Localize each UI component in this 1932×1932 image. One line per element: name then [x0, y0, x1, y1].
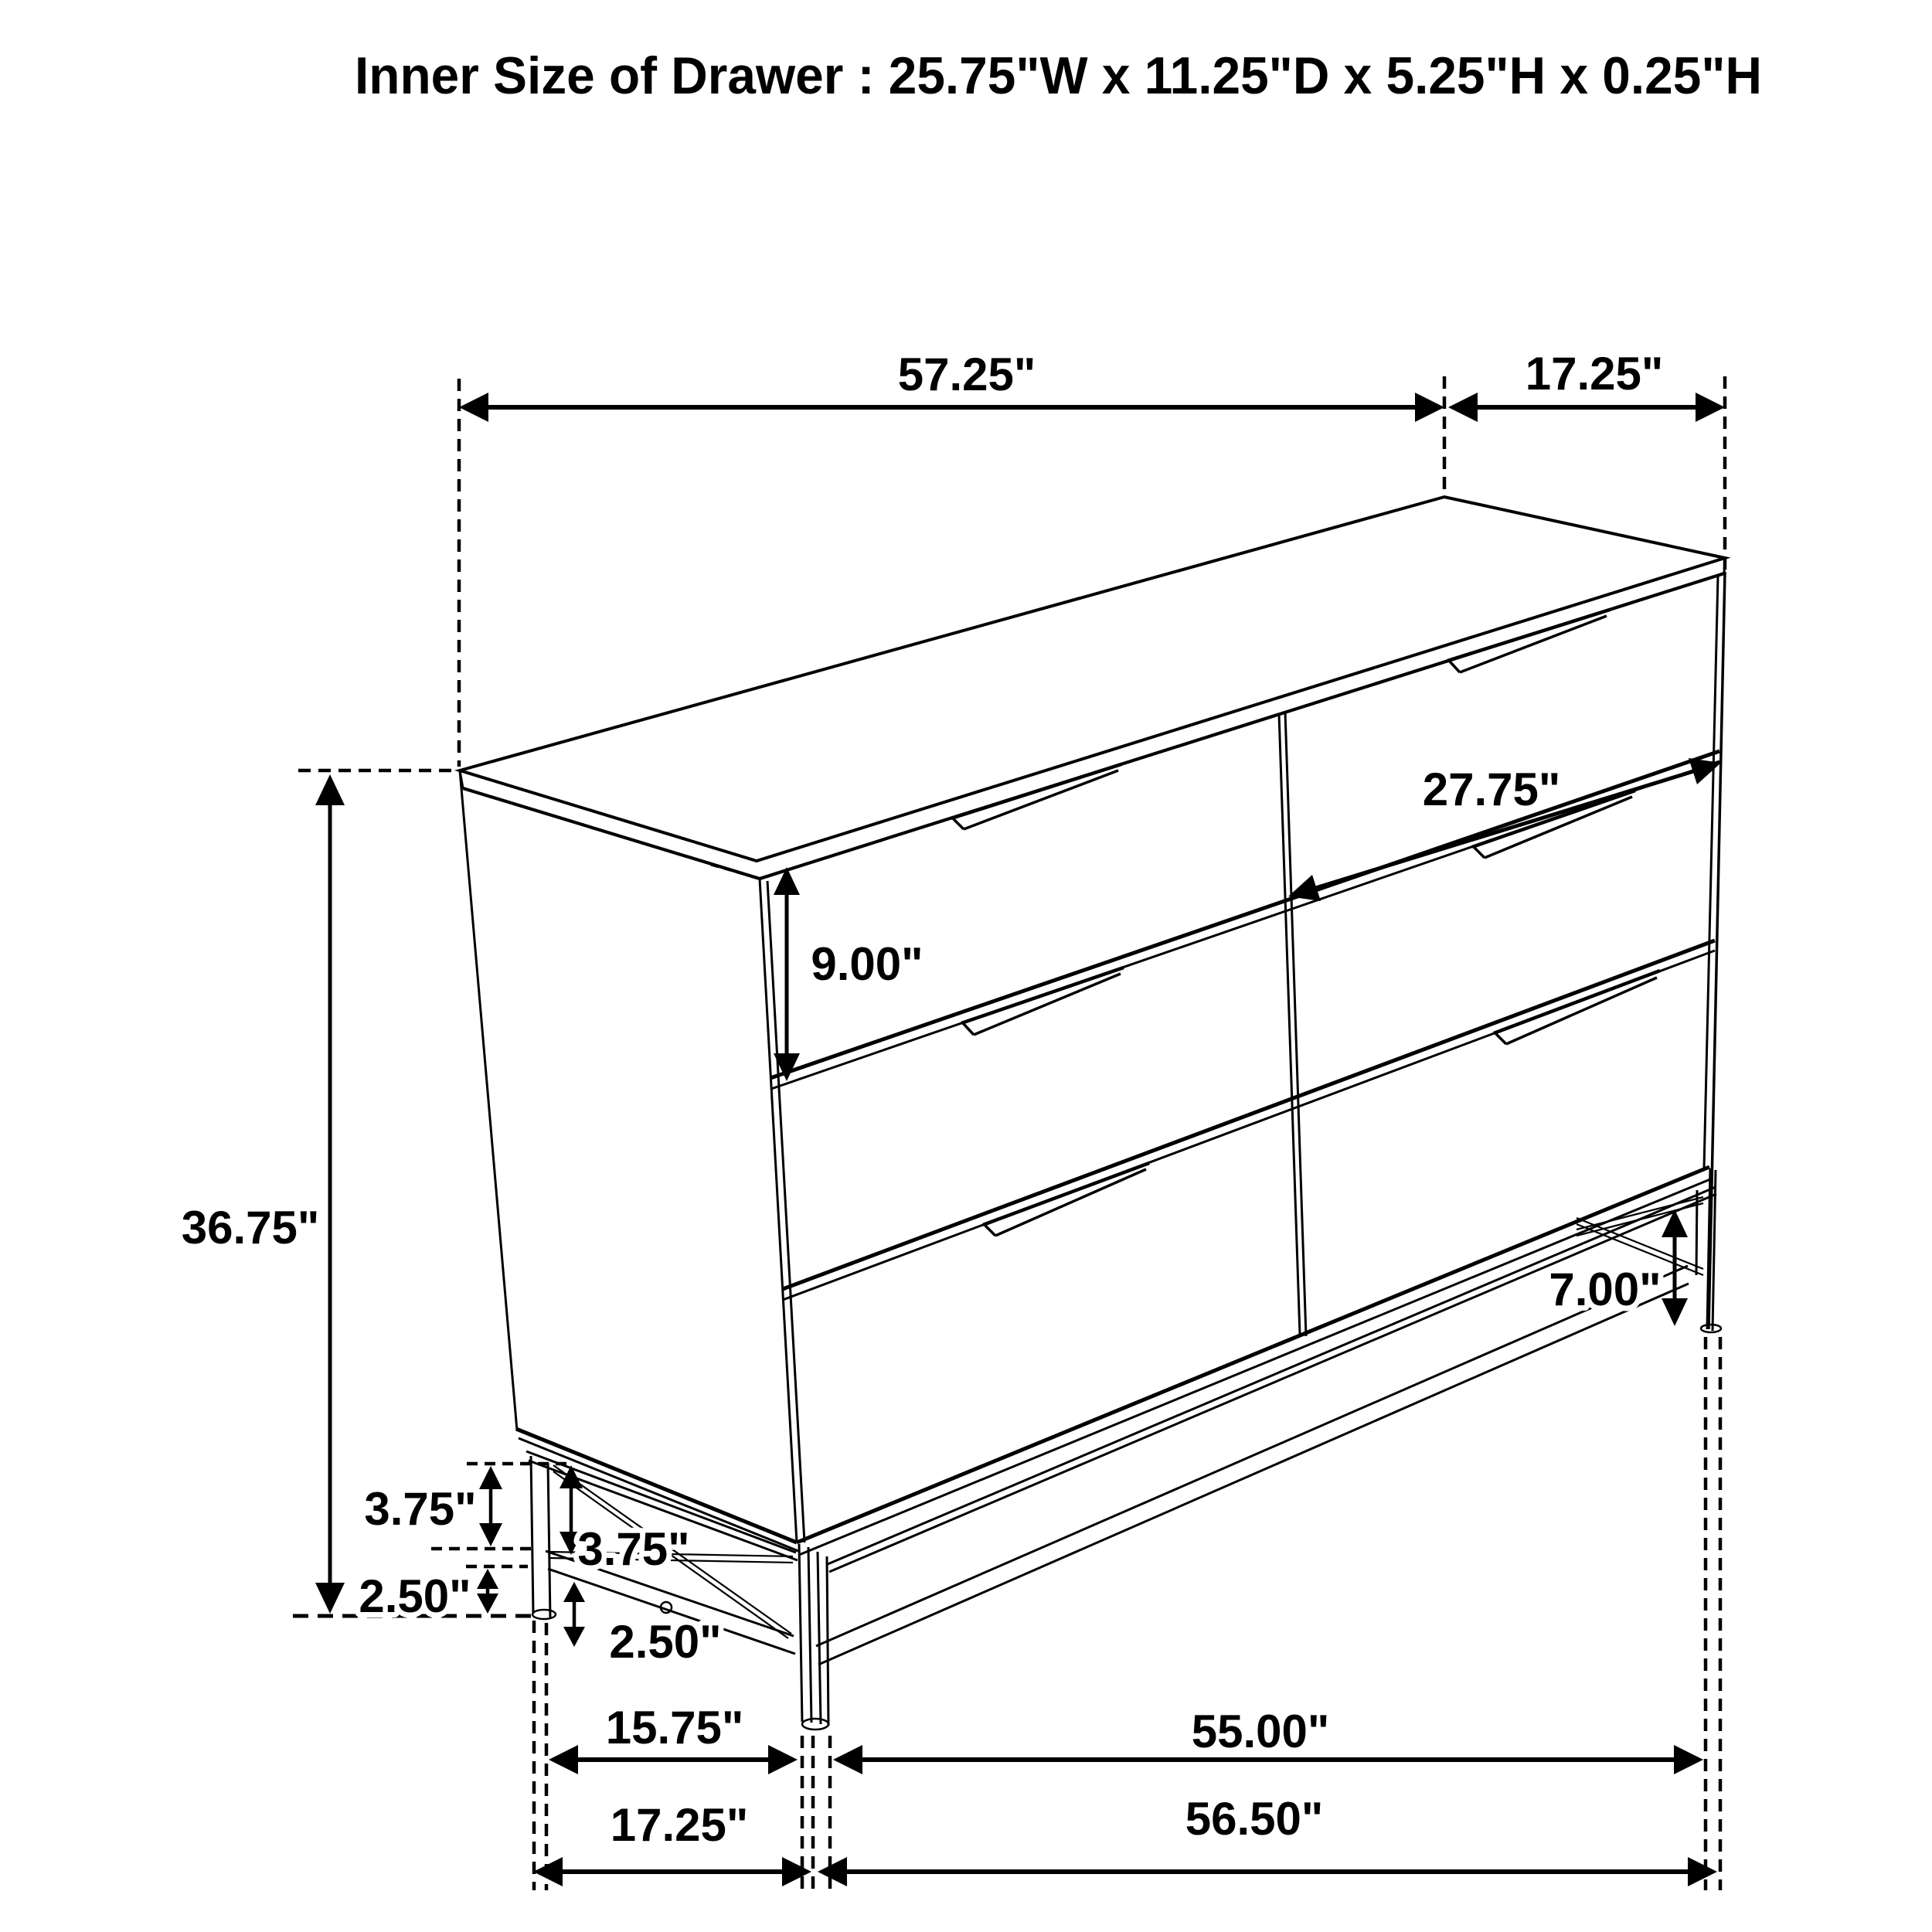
svg-text:9.00": 9.00" [811, 938, 923, 990]
svg-text:36.75": 36.75" [182, 1202, 320, 1253]
svg-text:15.75": 15.75" [606, 1702, 744, 1753]
svg-text:57.25": 57.25" [898, 349, 1036, 400]
svg-text:Inner Size of Drawer : 25.75"W: Inner Size of Drawer : 25.75"W x 11.25"D… [355, 46, 1762, 105]
svg-text:17.25": 17.25" [1526, 348, 1664, 400]
svg-text:2.50": 2.50" [609, 1616, 721, 1668]
svg-text:3.75": 3.75" [364, 1483, 476, 1535]
svg-text:2.50": 2.50" [359, 1570, 471, 1622]
svg-text:27.75": 27.75" [1423, 764, 1561, 815]
svg-text:3.75": 3.75" [577, 1523, 689, 1575]
svg-text:56.50": 56.50" [1185, 1793, 1324, 1845]
svg-text:7.00": 7.00" [1549, 1264, 1661, 1315]
svg-text:55.00": 55.00" [1192, 1706, 1330, 1757]
svg-text:17.25": 17.25" [611, 1799, 749, 1851]
